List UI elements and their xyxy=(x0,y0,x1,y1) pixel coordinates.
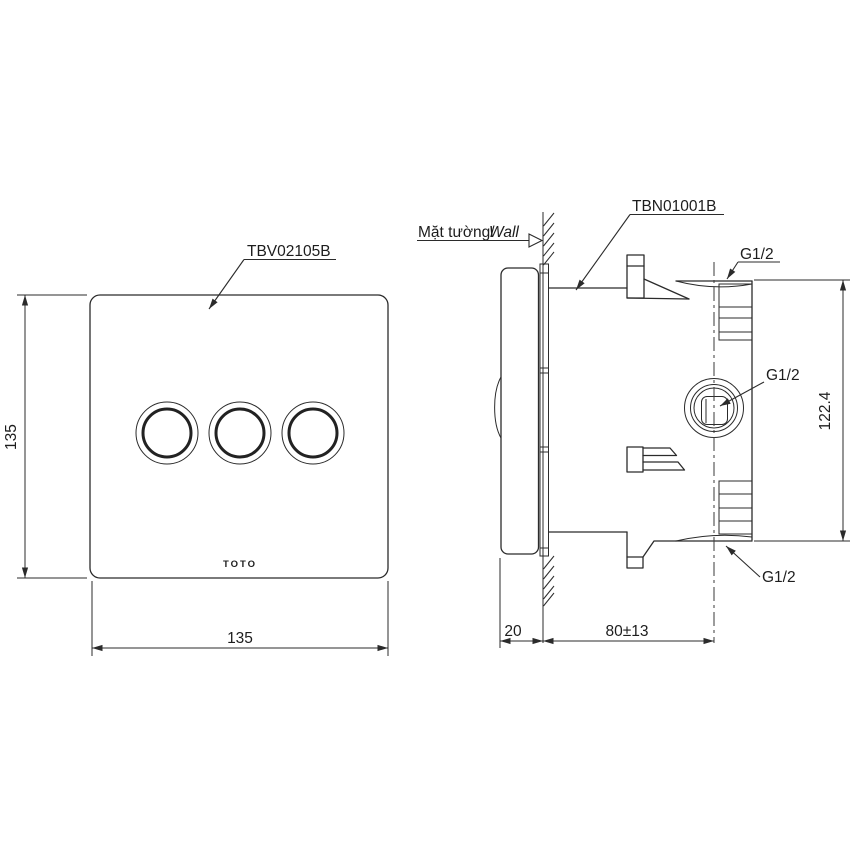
front-height-value: 135 xyxy=(3,424,20,450)
middle-clip xyxy=(627,447,685,472)
bottom-foot xyxy=(627,532,676,568)
front-part-label: TBV02105B xyxy=(247,243,331,260)
front-width-dimension: 135 xyxy=(92,581,388,656)
side-view: Mặt tường/ Wall TBN01001B G1/2 G1/2 G1/2 xyxy=(417,198,850,648)
plate-side-profile xyxy=(495,264,549,556)
button-outer-ring xyxy=(136,402,198,464)
plate-body xyxy=(501,268,539,554)
port-bottom-callout: G1/2 xyxy=(726,546,796,586)
leader-line xyxy=(720,382,764,406)
technical-drawing-page: TOTO TBV02105B 135 135 xyxy=(0,0,850,847)
button-inner-ring xyxy=(143,409,191,457)
front-view: TOTO TBV02105B 135 135 xyxy=(3,243,388,656)
port-mid-label: G1/2 xyxy=(766,367,800,384)
top-bracket xyxy=(627,255,689,299)
front-height-dimension: 135 xyxy=(3,295,87,578)
front-width-value: 135 xyxy=(227,630,253,647)
wall-hatching-top xyxy=(544,213,555,265)
depth-dimensions: 20 80±13 xyxy=(500,558,714,648)
wall-thickness-value: 20 xyxy=(504,623,522,640)
button-inner-ring xyxy=(289,409,337,457)
valve-body xyxy=(549,255,752,643)
toto-logo: TOTO xyxy=(223,559,257,570)
leader-line xyxy=(209,260,244,310)
wall-callout: Mặt tường/ Wall xyxy=(417,224,542,247)
plate-button-3 xyxy=(282,402,344,464)
side-height-value: 122.4 xyxy=(817,391,834,430)
button-inner-ring xyxy=(216,409,264,457)
port-bottom-label: G1/2 xyxy=(762,569,796,586)
front-part-callout: TBV02105B xyxy=(209,243,336,309)
leader-line xyxy=(576,215,630,291)
button-bump xyxy=(495,377,501,438)
wall-hatching-bottom xyxy=(544,556,555,606)
leader-line xyxy=(726,546,760,577)
depth-value: 80±13 xyxy=(606,623,649,640)
port-top-label: G1/2 xyxy=(740,246,774,263)
side-height-dimension: 122.4 xyxy=(754,280,850,541)
plate-button-2 xyxy=(209,402,271,464)
plate-button-1 xyxy=(136,402,198,464)
wall-label-vi: Mặt tường/ xyxy=(418,224,495,241)
open-arrowhead xyxy=(529,234,542,247)
button-outer-ring xyxy=(209,402,271,464)
side-part-callout: TBN01001B xyxy=(576,198,724,290)
port-top-callout: G1/2 xyxy=(727,246,780,279)
drawing-svg: TOTO TBV02105B 135 135 xyxy=(0,0,850,847)
plate-back-strip xyxy=(540,264,549,556)
button-outer-ring xyxy=(282,402,344,464)
wall-label-en: Wall xyxy=(489,224,519,241)
strip-ticks xyxy=(540,273,549,548)
leader-line xyxy=(727,262,738,279)
side-part-label: TBN01001B xyxy=(632,198,716,215)
